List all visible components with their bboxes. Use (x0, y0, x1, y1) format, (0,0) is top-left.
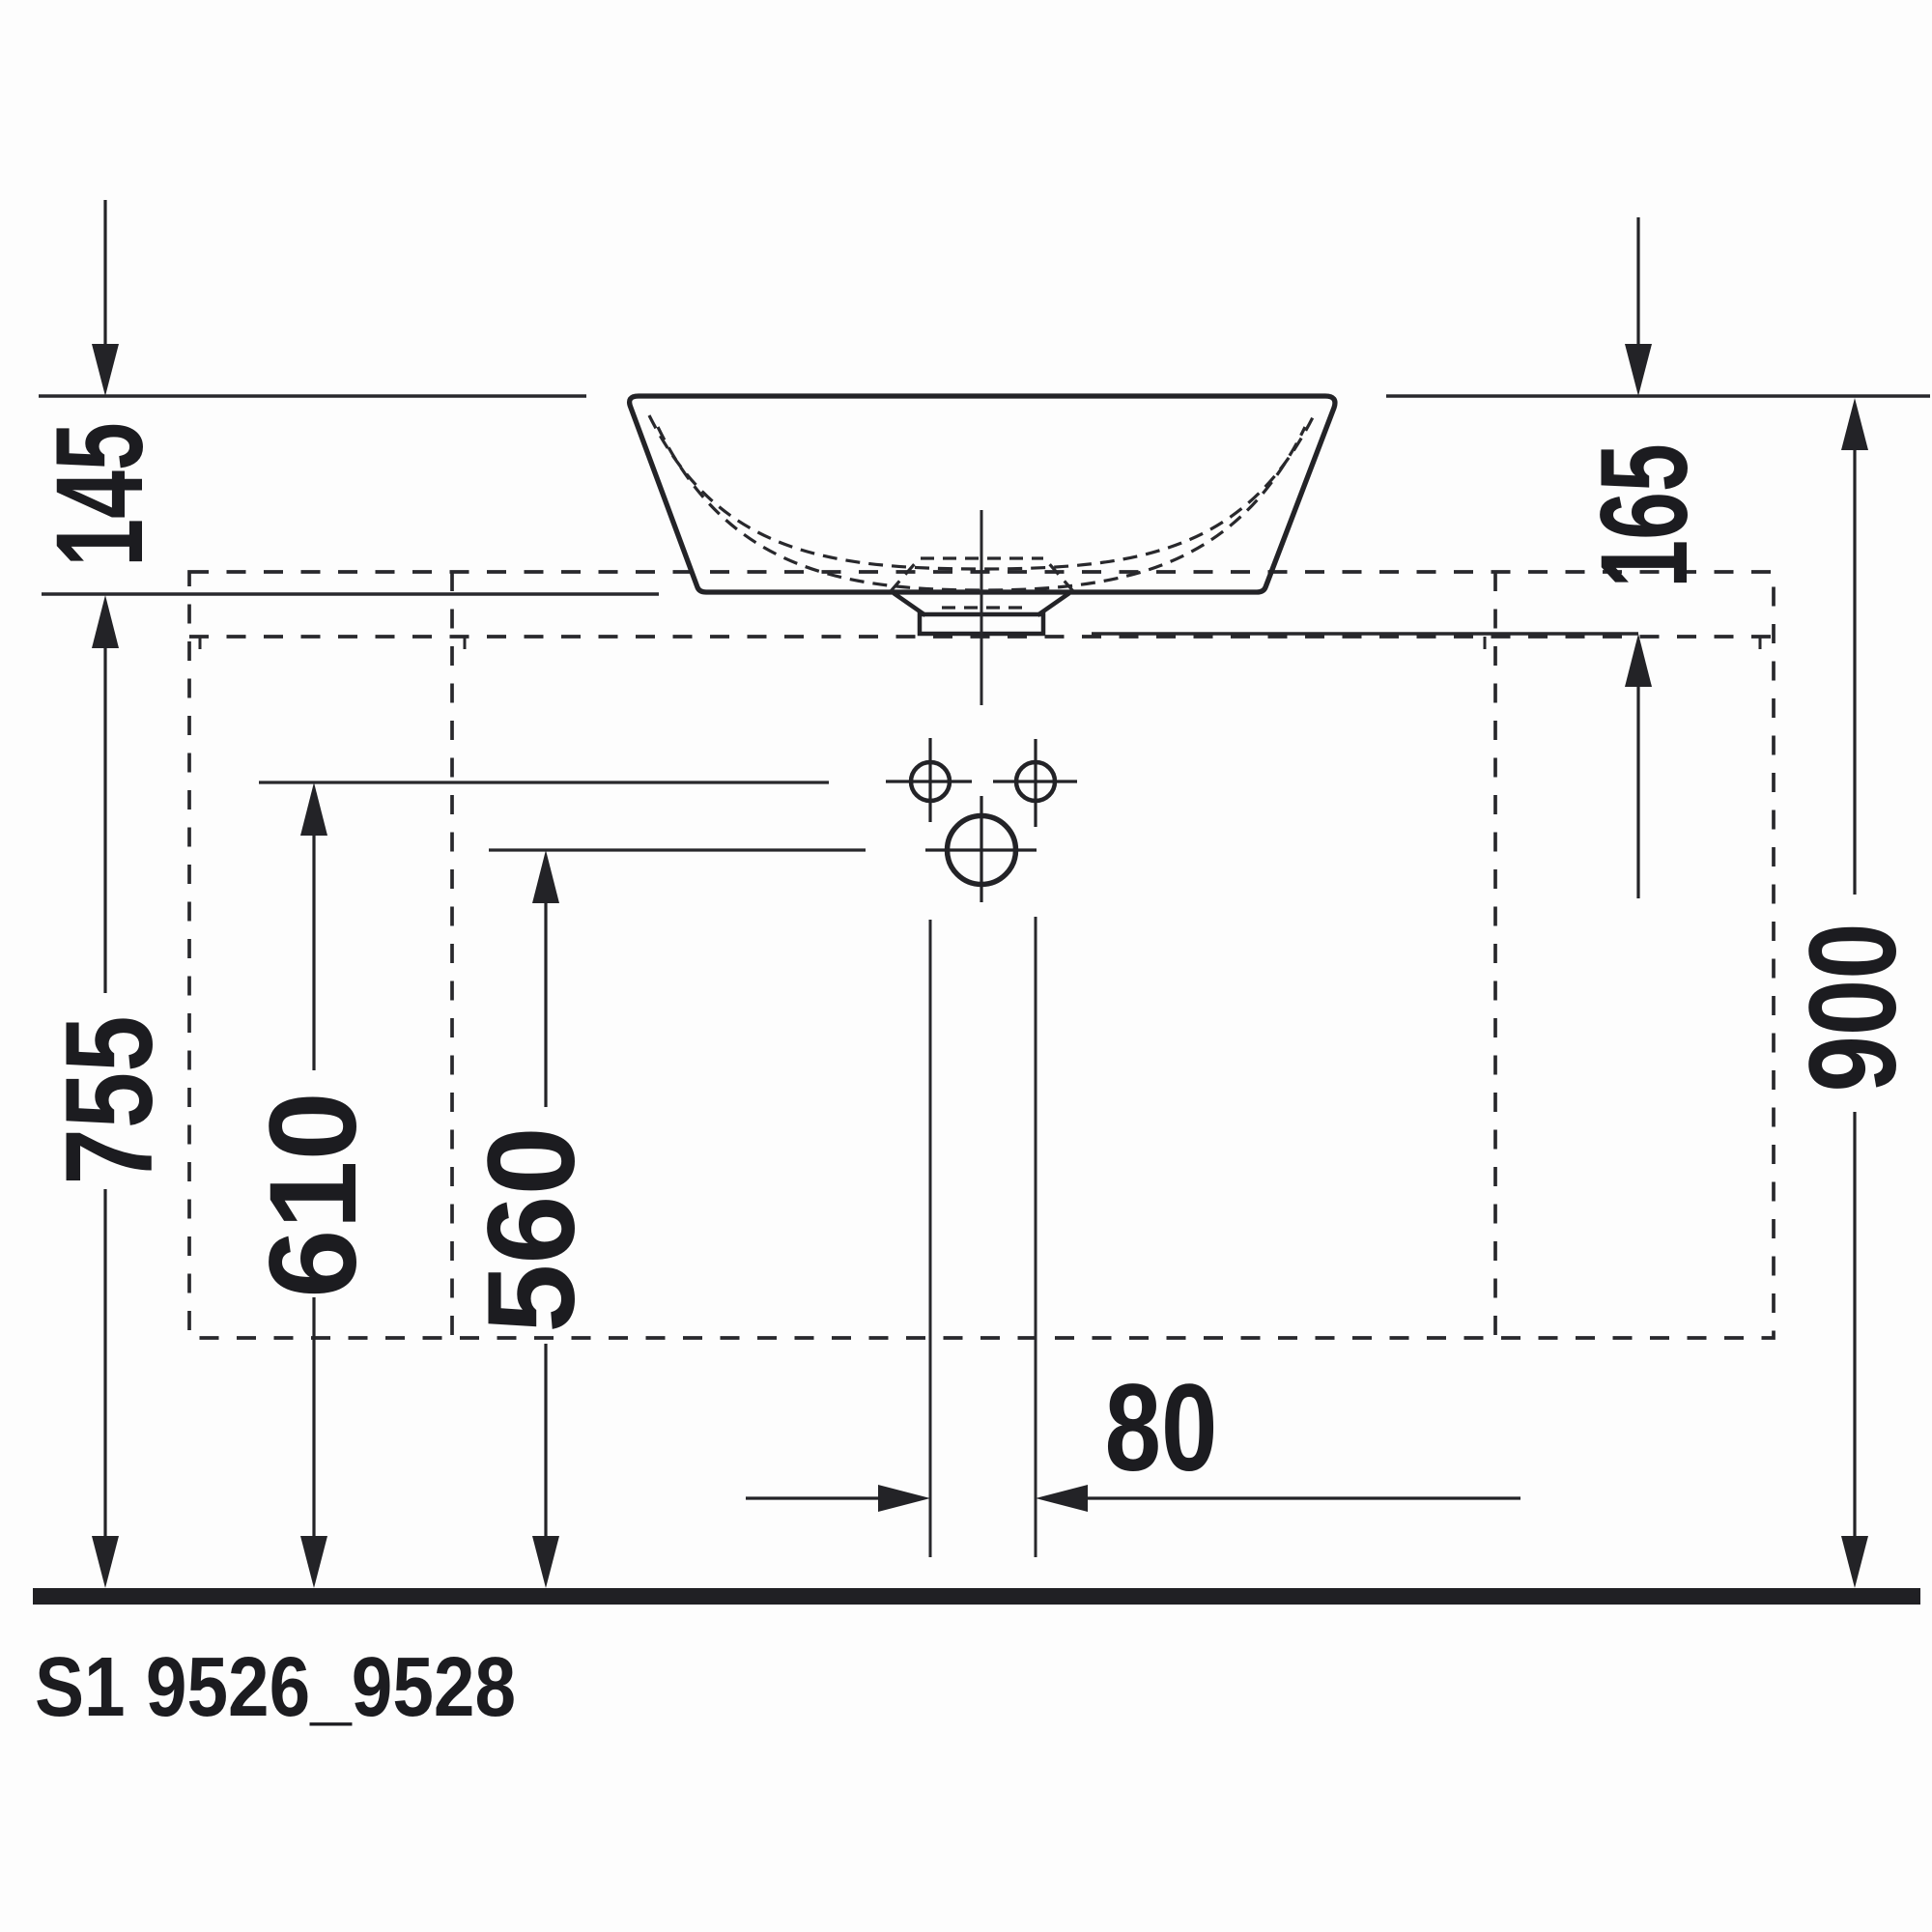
svg-text:900: 900 (1783, 923, 1921, 1092)
svg-text:S1 9526_9528: S1 9526_9528 (35, 1640, 516, 1734)
svg-text:165: 165 (1576, 443, 1714, 587)
svg-text:755: 755 (40, 1015, 178, 1184)
svg-text:610: 610 (244, 1092, 383, 1298)
svg-text:80: 80 (1105, 1358, 1218, 1496)
svg-text:560: 560 (463, 1126, 601, 1333)
svg-text:145: 145 (31, 422, 169, 566)
